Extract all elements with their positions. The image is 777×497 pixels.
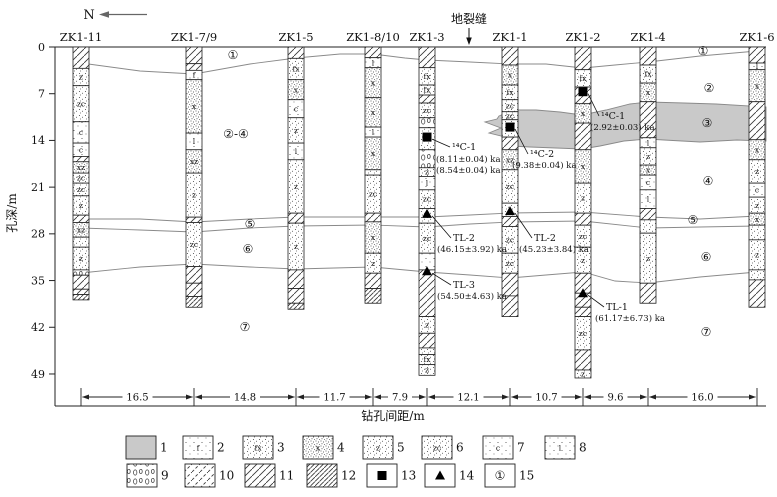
lithology-code-label: zc xyxy=(77,99,85,108)
stratum-number-label: ② xyxy=(704,81,715,95)
lithology-segment xyxy=(186,297,202,308)
lithology-segment xyxy=(365,213,381,222)
spacing-value-label: 12.1 xyxy=(457,393,479,404)
legend-number-label: 5 xyxy=(397,441,405,455)
lithology-segment xyxy=(502,216,518,226)
lithology-segment xyxy=(749,47,765,63)
lithology-segment xyxy=(575,123,591,150)
stratum-number-label: ⑦ xyxy=(701,325,712,339)
lithology-segment xyxy=(749,102,765,140)
lithology-code-label: zc xyxy=(77,185,85,194)
lithology-segment xyxy=(73,289,89,294)
ground-fissure-marker: 地裂缝 xyxy=(451,11,487,45)
lithology-segment xyxy=(575,47,591,70)
legend-swatch xyxy=(245,464,275,487)
legend-item: l8 xyxy=(545,436,587,459)
depth-axis-label: 孔深/m xyxy=(5,193,19,233)
legend-number-label: 2 xyxy=(217,441,225,455)
sample-name-label: ¹⁴C-1 xyxy=(452,142,476,153)
lithology-code-label: z xyxy=(79,254,83,263)
lithology-segment xyxy=(365,170,381,175)
lithology-segment xyxy=(288,289,304,304)
stratum-number-label: ① xyxy=(698,44,709,58)
sample-age-label: (46.15±3.92) ka xyxy=(437,244,507,255)
borehole-column: lxxlxzcxz xyxy=(365,47,381,303)
dimension-arrowhead-icon xyxy=(584,395,591,400)
borehole-column: fxxlzxclz xyxy=(640,47,656,303)
legend-item: 10 xyxy=(185,464,234,487)
sample-name-label: ¹⁴C-1 xyxy=(601,111,625,122)
fissure-arrowhead-icon xyxy=(466,38,472,46)
legend-item: 12 xyxy=(307,464,356,487)
lithology-segment xyxy=(749,280,765,307)
depth-tick-label: 14 xyxy=(31,134,45,147)
depth-tick-label: 21 xyxy=(31,181,45,194)
lithology-code-label: zc xyxy=(506,111,514,120)
lithology-code-label: xz xyxy=(77,163,85,172)
borehole-column: fxxxzzczzcz xyxy=(575,47,591,379)
lithology-segment xyxy=(419,95,435,103)
north-arrowhead-icon xyxy=(99,11,109,17)
lithology-code-label: xz xyxy=(190,157,198,166)
lithology-code-label: fx xyxy=(423,355,431,364)
legend-number-label: 4 xyxy=(337,441,345,455)
lithology-code-label: z xyxy=(294,126,298,135)
lithology-segment xyxy=(419,150,435,168)
lithology-segment xyxy=(186,283,202,296)
lithology-segment xyxy=(73,156,89,161)
borehole-name-label: ZK1-11 xyxy=(60,30,102,44)
lithology-segment xyxy=(186,267,202,284)
sample-name-label: ¹⁴C-2 xyxy=(530,149,554,160)
legend-item: x4 xyxy=(303,436,345,459)
borehole-column: fxlxzzzc xyxy=(186,47,202,307)
legend-number-label: 12 xyxy=(341,469,356,483)
spacing-value-label: 14.8 xyxy=(234,393,256,404)
legend-c14-marker-icon xyxy=(378,471,387,480)
lithology-code-label: z xyxy=(425,321,429,330)
borehole-name-label: ZK1-8/10 xyxy=(346,30,400,44)
lithology-segment xyxy=(640,220,656,233)
stratum-number-label: ③ xyxy=(702,116,713,130)
borehole-column: lxxzczxz xyxy=(749,47,765,307)
lithology-code-label: z xyxy=(192,191,196,200)
borehole-column: xfxzczcxzzczczc xyxy=(502,47,518,317)
lithology-code-label: z xyxy=(646,254,650,263)
dimension-arrowhead-icon xyxy=(374,395,381,400)
borehole-name-label: ZK1-6 xyxy=(739,30,774,44)
c14-sample-marker-icon xyxy=(506,123,515,132)
ground-fissure-label: 地裂缝 xyxy=(451,11,487,26)
spacing-value-label: 16.0 xyxy=(691,393,713,404)
dimension-arrowhead-icon xyxy=(365,395,372,400)
depth-tick-label: 42 xyxy=(31,321,45,334)
lithology-code-label: zc xyxy=(506,259,514,268)
lithology-code-label: z xyxy=(79,201,83,210)
dimension-arrowhead-icon xyxy=(511,395,518,400)
legend-item: 13 xyxy=(367,464,416,487)
c14-sample-marker-icon xyxy=(579,87,588,96)
lithology-code-label: z xyxy=(755,201,759,210)
dimension-arrowhead-icon xyxy=(419,395,426,400)
lithology-segment xyxy=(365,289,381,304)
dimension-arrowhead-icon xyxy=(428,395,435,400)
legend-item: fx3 xyxy=(243,436,285,459)
lithology-code-label: z xyxy=(755,250,759,259)
spacing-value-label: 9.6 xyxy=(608,393,624,404)
lithology-code-label: fx xyxy=(579,74,587,83)
lithology-segment xyxy=(73,295,89,300)
stratum-number-label: ⑥ xyxy=(243,242,254,256)
north-label: N xyxy=(83,8,94,23)
sample-age-label: (2.92±0.03) ka xyxy=(590,122,655,133)
legend-item: zc6 xyxy=(422,436,464,459)
legend-number-label: 13 xyxy=(401,469,416,483)
legend-number-label: 15 xyxy=(519,469,534,483)
legend-item: 1 xyxy=(126,436,168,459)
depth-tick-label: 49 xyxy=(31,368,45,381)
lithology-segment xyxy=(502,47,518,65)
depth-tick-label: 7 xyxy=(38,88,45,101)
lithology-code-label: z xyxy=(755,167,759,176)
depth-tick-label: 28 xyxy=(31,228,45,241)
legend-number-label: 1 xyxy=(160,441,168,455)
legend-number-label: 3 xyxy=(277,441,285,455)
lithology-code-label: zc xyxy=(423,234,431,243)
sample-name-label: TL-2 xyxy=(534,233,556,244)
sample-age-label: (8.11±0.04) ka xyxy=(436,154,501,165)
lithology-segment xyxy=(365,47,381,58)
lithology-segment xyxy=(419,270,435,317)
sample-name-label: TL-1 xyxy=(606,302,628,313)
legend-number-label: 6 xyxy=(456,441,464,455)
lithology-code-label: fx xyxy=(423,86,431,95)
lithology-segment xyxy=(502,137,518,150)
legend-item: 11 xyxy=(245,464,294,487)
legend-number-label: 10 xyxy=(219,469,234,483)
legend-lithology-code: zc xyxy=(433,443,441,452)
dimension-arrowhead-icon xyxy=(649,395,656,400)
dimension-arrowhead-icon xyxy=(186,395,193,400)
borehole-column: zzcccxzzczczxzz xyxy=(73,47,89,300)
sample-name-label: TL-2 xyxy=(453,233,475,244)
depth-tick-label: 0 xyxy=(38,41,45,54)
sample-age-label: (45.23±3.84) ka xyxy=(519,244,589,255)
lithology-code-label: c xyxy=(79,145,83,154)
depth-tick-label: 35 xyxy=(31,274,45,287)
borehole-name-label: ZK1-2 xyxy=(565,30,600,44)
stratum-number-label: ②-④ xyxy=(223,127,249,141)
lithology-segment xyxy=(419,348,435,355)
lithology-segment xyxy=(186,47,202,64)
distance-axis-label: 钻孔间距/m xyxy=(361,408,425,423)
spacing-value-label: 11.7 xyxy=(323,393,345,404)
lithology-code-label: fx xyxy=(506,88,514,97)
lithology-segment xyxy=(575,350,591,370)
borehole-name-label: ZK1-7/9 xyxy=(171,30,217,44)
lithology-code-label: z xyxy=(79,73,83,82)
lithology-code-label: c xyxy=(294,104,298,113)
legend-number-label: 8 xyxy=(579,441,587,455)
dimension-arrowhead-icon xyxy=(297,395,304,400)
lithology-segment xyxy=(640,208,656,219)
lithology-segment xyxy=(749,270,765,280)
lithology-code-label: xz xyxy=(77,225,85,234)
lithology-segment xyxy=(73,237,89,247)
lithology-code-label: zc xyxy=(77,174,85,183)
lithology-code-label: zc xyxy=(579,329,587,338)
lithology-segment xyxy=(73,270,89,275)
lithology-segment xyxy=(186,217,202,222)
lithology-segment xyxy=(640,283,656,303)
legend-lithology-code: c xyxy=(496,443,500,452)
dimension-arrowhead-icon xyxy=(640,395,647,400)
lithology-segment xyxy=(419,333,435,348)
lithology-segment xyxy=(73,275,89,289)
legend: 1f2fx3x4z5zc6c7l891011121314①15 xyxy=(126,436,587,487)
legend-item: 9 xyxy=(127,464,169,487)
lithology-segment xyxy=(73,215,89,222)
spacing-value-label: 16.5 xyxy=(126,393,148,404)
legend-number-label: 14 xyxy=(459,469,475,483)
lithology-code-label: zc xyxy=(423,106,431,115)
sample-age-label: (9.38±0.04) ka xyxy=(512,160,577,171)
legend-item: c7 xyxy=(483,436,525,459)
borehole-cross-section-figure: 0714212835424916.514.811.77.912.110.79.6… xyxy=(0,0,777,497)
legend-item: z5 xyxy=(363,436,405,459)
borehole-name-label: ZK1-3 xyxy=(409,30,444,44)
lithology-code-label: z xyxy=(294,242,298,251)
lithology-code-label: fx xyxy=(644,70,652,79)
lithology-code-label: c xyxy=(79,128,83,137)
lithology-code-label: z xyxy=(646,152,650,161)
boreholes: zzcccxzzczczxzzZK1-11fxlxzzzcZK1-7/9fxxc… xyxy=(60,30,775,379)
stratum-number-label: ⑥ xyxy=(701,250,712,264)
lithology-segment xyxy=(186,64,202,71)
legend-swatch xyxy=(307,464,337,487)
dimension-arrowhead-icon xyxy=(575,395,582,400)
lithology-segment xyxy=(575,307,591,316)
lithology-segment xyxy=(365,273,381,288)
lithology-segment xyxy=(419,118,435,128)
legend-item: f2 xyxy=(183,436,225,459)
lithology-code-label: c xyxy=(755,186,759,195)
borehole-name-label: ZK1-4 xyxy=(630,30,665,44)
sample-age-label: (8.54±0.04) ka xyxy=(436,165,501,176)
sample-name-label: TL-3 xyxy=(453,280,475,291)
legend-item: ①15 xyxy=(485,464,534,487)
lithology-code-label: z xyxy=(425,366,429,375)
lithology-segment xyxy=(749,225,765,240)
lithology-code-label: zc xyxy=(506,235,514,244)
lithology-code-label: zc xyxy=(190,240,198,249)
spacing-value-label: 10.7 xyxy=(535,393,557,404)
legend-item: 14 xyxy=(425,464,475,487)
dimension-arrowhead-icon xyxy=(288,395,295,400)
stratum-number-label: ⑤ xyxy=(688,213,699,227)
lithology-code-label: z xyxy=(581,370,585,379)
lithology-segment xyxy=(575,213,591,225)
legend-lithology-code: fx xyxy=(254,443,262,452)
north-arrow: N xyxy=(83,8,147,23)
dimension-arrowhead-icon xyxy=(195,395,202,400)
stratum-number-label: ⑦ xyxy=(240,320,251,334)
legend-lithology-code: z xyxy=(376,443,380,452)
legend-stratum-number: ① xyxy=(495,469,506,483)
lithology-segment xyxy=(288,270,304,289)
c14-sample-marker-icon xyxy=(423,133,432,142)
legend-swatch xyxy=(185,464,215,487)
lithology-segment xyxy=(640,47,656,65)
legend-number-label: 11 xyxy=(279,469,294,483)
lithology-code-label: zc xyxy=(369,190,377,199)
borehole-name-label: ZK1-1 xyxy=(492,30,527,44)
stratum-number-label: ⑤ xyxy=(245,217,256,231)
legend-number-label: 9 xyxy=(161,469,169,483)
lithology-code-label: zc xyxy=(579,232,587,241)
lithology-code-label: zc xyxy=(506,101,514,110)
lithology-code-label: fx xyxy=(423,72,431,81)
lithology-segment xyxy=(419,47,435,68)
legend-swatch xyxy=(126,436,156,459)
lithology-code-label: zc xyxy=(506,182,514,191)
lithology-segment xyxy=(73,47,89,68)
lithology-code-label: z xyxy=(294,182,298,191)
lithology-code-label: z xyxy=(371,259,375,268)
dimension-arrowhead-icon xyxy=(502,395,509,400)
sample-age-label: (61.17±6.73) ka xyxy=(595,313,665,324)
legend-swatch xyxy=(127,464,157,487)
lithology-segment xyxy=(288,47,304,58)
lithology-code-label: fx xyxy=(292,65,300,74)
lithology-code-label: c xyxy=(646,178,650,187)
lithology-code-label: z xyxy=(581,256,585,265)
stratum-number-label: ① xyxy=(228,48,239,62)
legend-number-label: 7 xyxy=(517,441,525,455)
dimension-arrowhead-icon xyxy=(82,395,89,400)
dimension-arrowhead-icon xyxy=(749,395,756,400)
lithology-segment xyxy=(288,213,304,223)
lithology-code-label: z xyxy=(425,168,429,177)
stratum-number-label: ④ xyxy=(703,174,714,188)
sample-age-label: (54.50±4.63) ka xyxy=(437,291,507,302)
cross-section-svg: 0714212835424916.514.811.77.912.110.79.6… xyxy=(0,0,777,497)
borehole-column: fxxczlzz xyxy=(288,47,304,309)
lithology-segment xyxy=(288,303,304,309)
spacing-value-label: 7.9 xyxy=(392,393,408,404)
lithology-code-label: zc xyxy=(423,195,431,204)
lithology-code-label: z xyxy=(581,194,585,203)
borehole-name-label: ZK1-5 xyxy=(278,30,313,44)
